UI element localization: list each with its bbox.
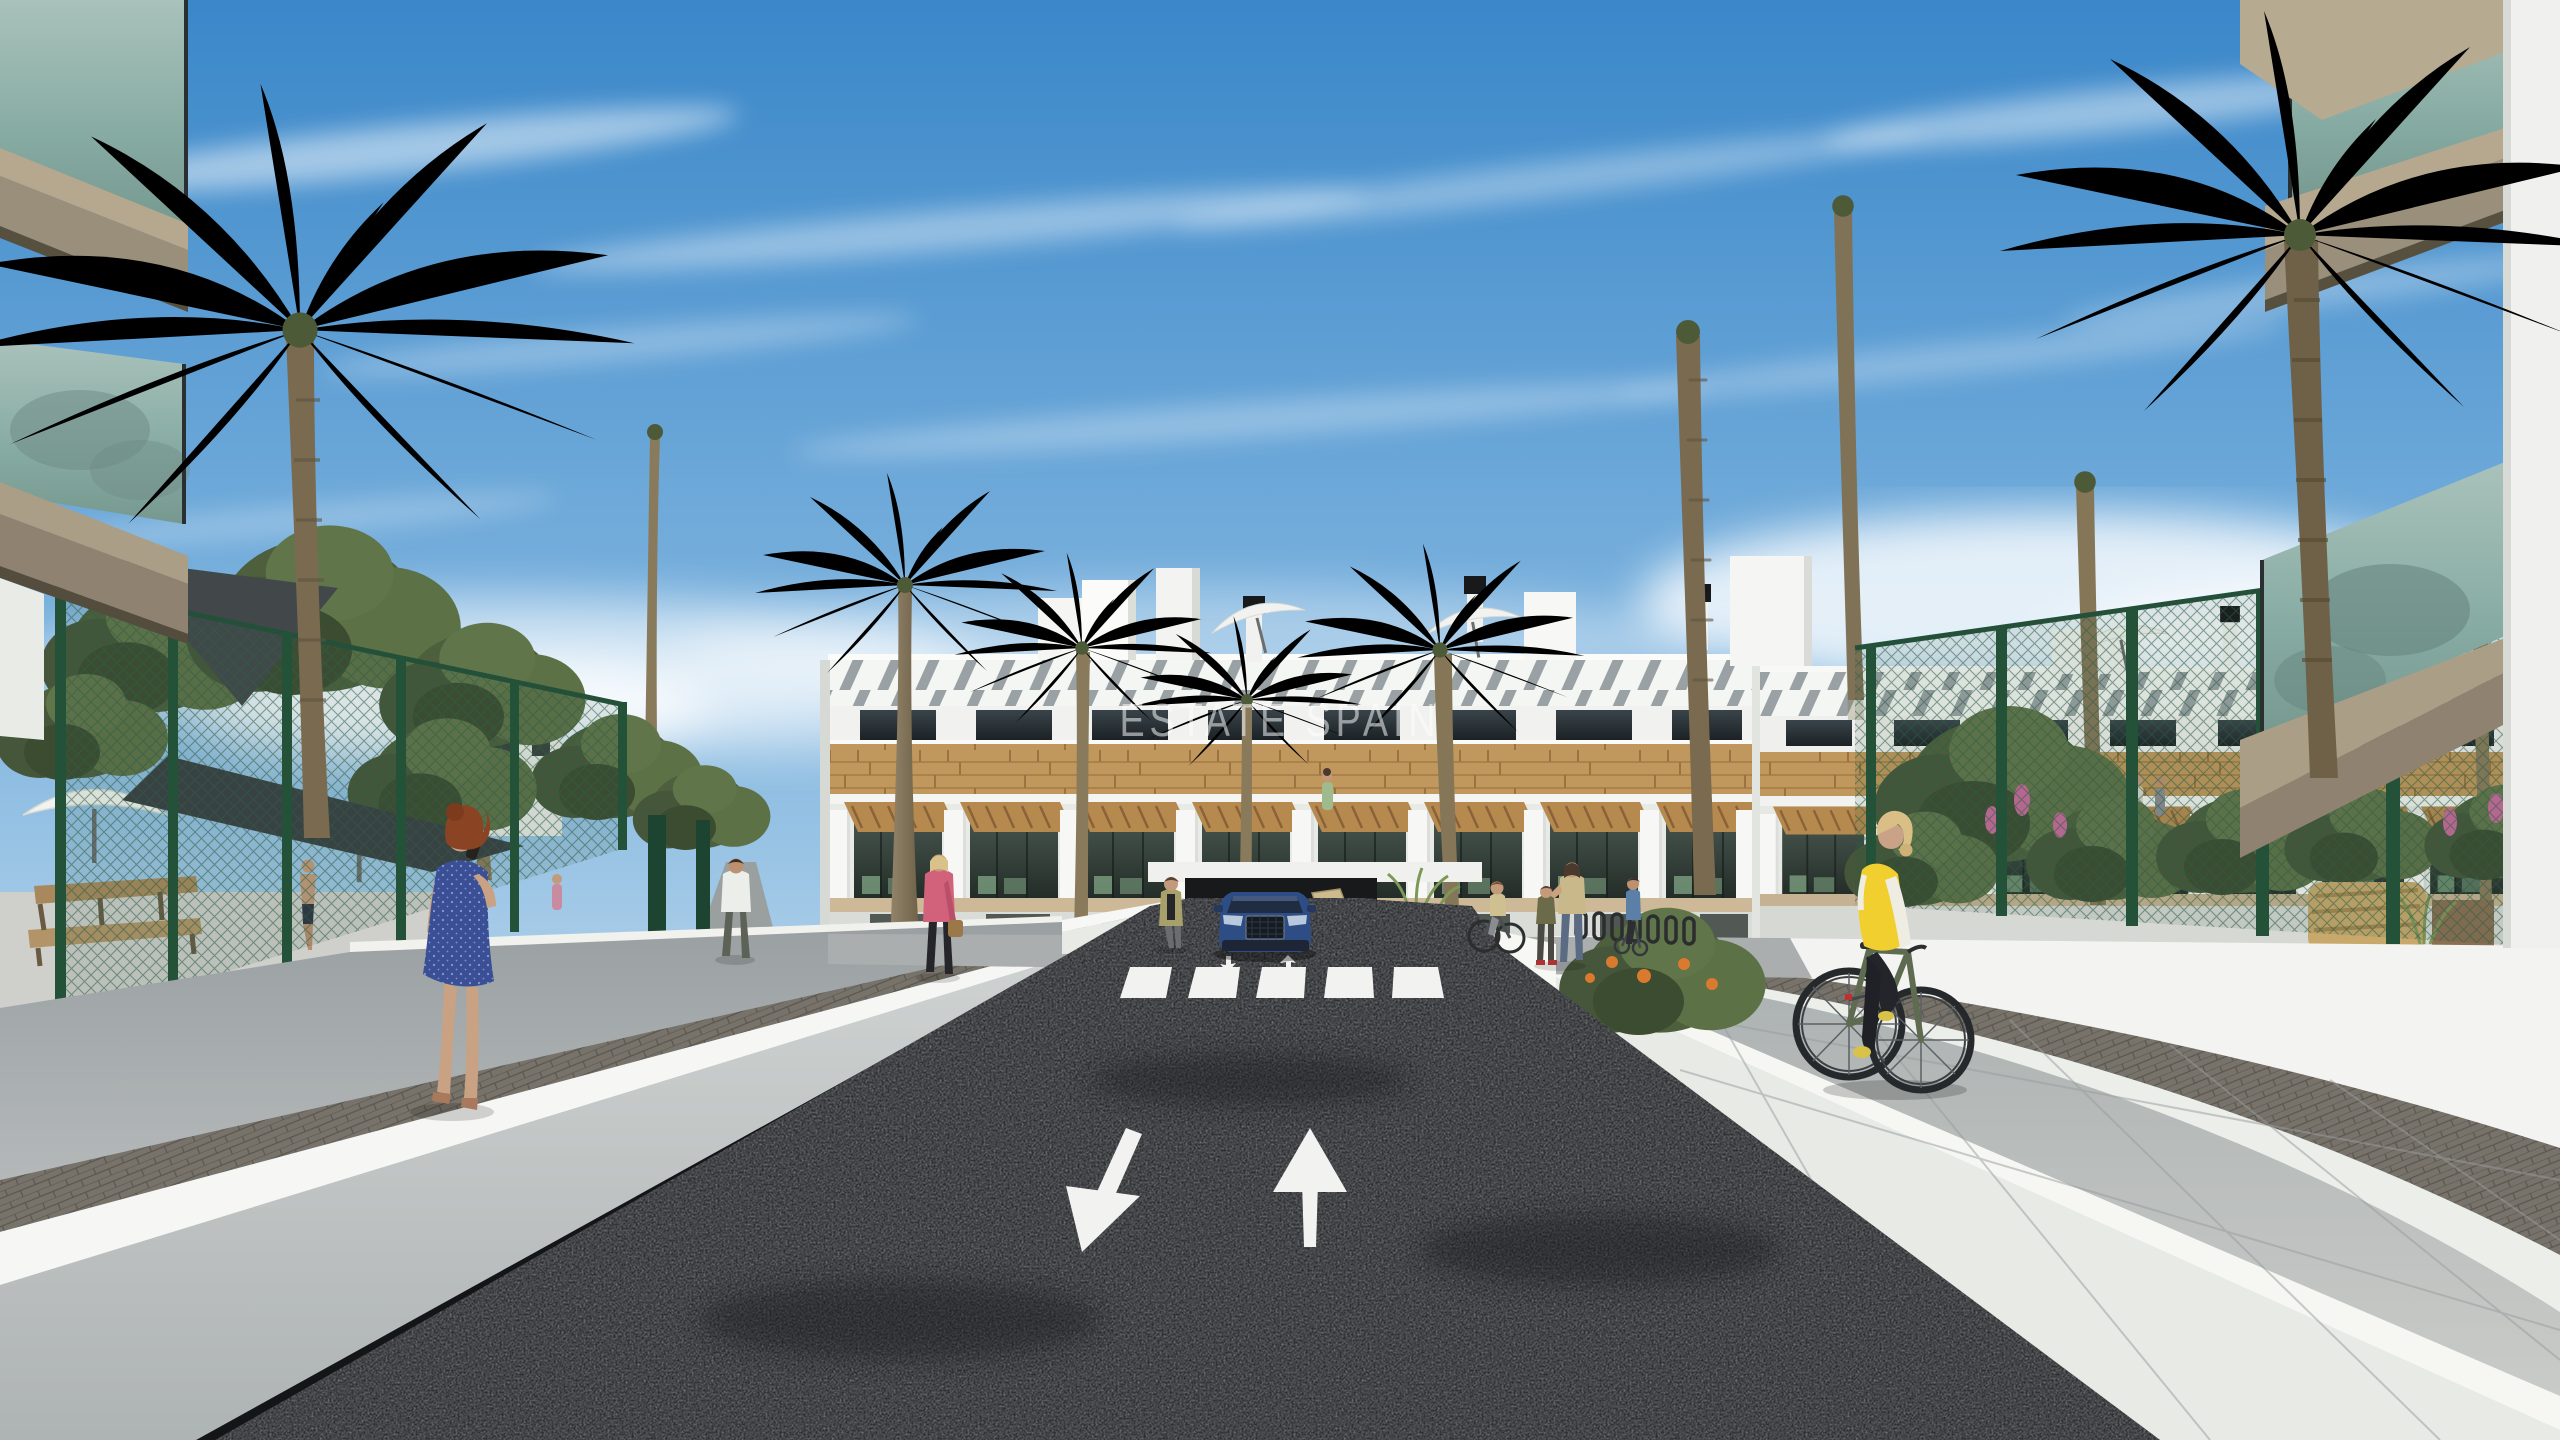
shoe xyxy=(1853,1046,1871,1058)
car-suv xyxy=(1213,892,1317,962)
wood-clad-band xyxy=(828,744,1758,794)
render-image: ESTATE SPAIN xyxy=(0,0,2560,1440)
tail-light xyxy=(1845,994,1852,1000)
right-pillar-wall xyxy=(2503,0,2560,948)
watermark: ESTATE SPAIN xyxy=(1119,693,1440,747)
gate-post xyxy=(648,815,666,945)
distant-deck-person xyxy=(552,874,562,910)
handbag xyxy=(948,920,963,937)
